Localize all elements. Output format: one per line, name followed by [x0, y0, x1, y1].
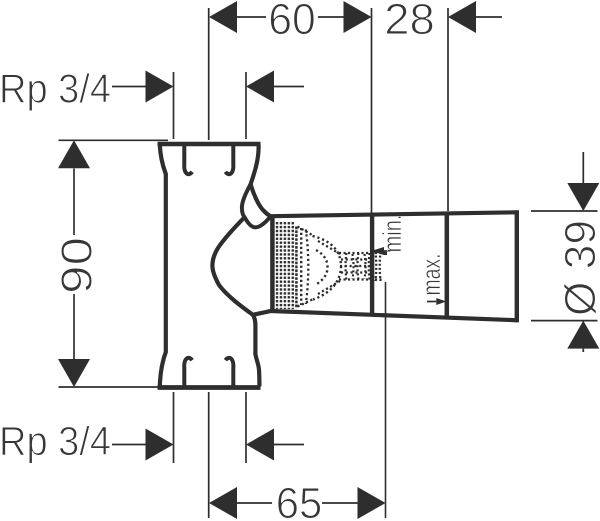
svg-text:65: 65 — [276, 480, 323, 521]
svg-text:90: 90 — [53, 237, 101, 294]
svg-text:min.: min. — [377, 215, 407, 253]
svg-text:60: 60 — [268, 0, 316, 44]
svg-text:Rp 3/4: Rp 3/4 — [0, 418, 111, 464]
svg-text:28: 28 — [384, 0, 435, 44]
svg-text:max.: max. — [416, 254, 446, 296]
svg-text:Ø 39: Ø 39 — [557, 220, 600, 316]
svg-text:Rp 3/4: Rp 3/4 — [0, 66, 111, 112]
